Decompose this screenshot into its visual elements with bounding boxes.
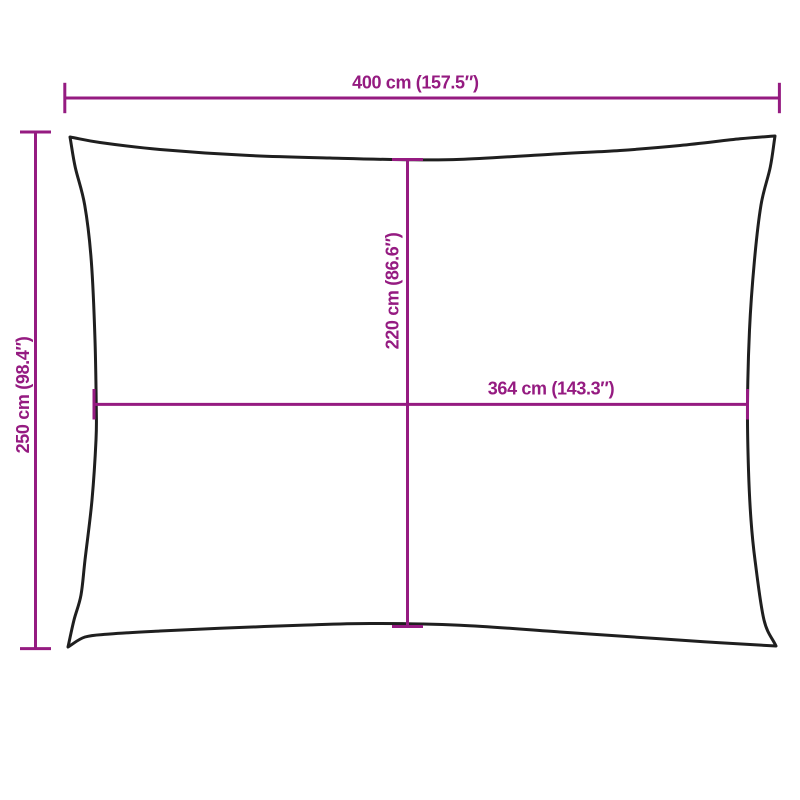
svg-text:364 cm (143.3″): 364 cm (143.3″) <box>488 378 615 398</box>
svg-text:400 cm (157.5″): 400 cm (157.5″) <box>352 72 479 92</box>
svg-text:250 cm (98.4″): 250 cm (98.4″) <box>13 336 33 453</box>
svg-text:220 cm (86.6″): 220 cm (86.6″) <box>383 232 403 349</box>
